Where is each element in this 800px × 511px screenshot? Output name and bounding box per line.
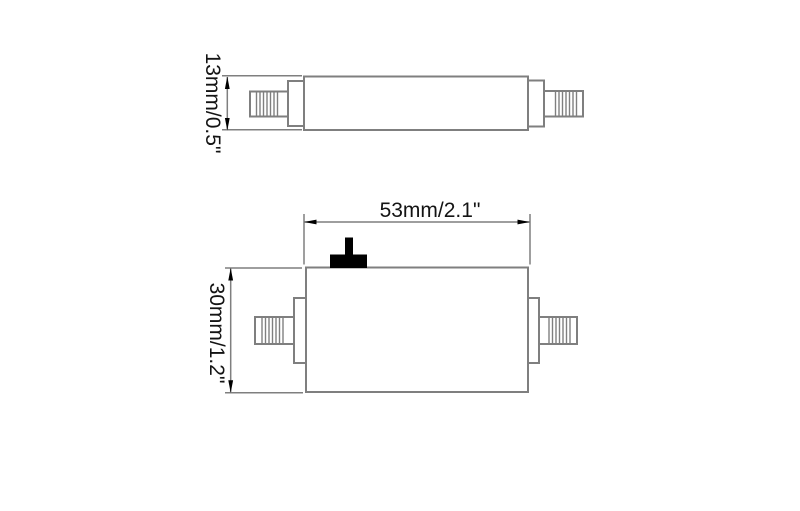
arrowhead-up-icon <box>225 77 230 90</box>
front-view-outlines <box>255 268 577 393</box>
side-view-height-dimension-label: 13mm/0.5" <box>201 53 224 154</box>
arrowhead-right-icon <box>518 220 531 225</box>
arrowhead-down-icon <box>225 118 230 131</box>
side-view-outlines <box>250 77 583 131</box>
side-view: 13mm/0.5" <box>201 53 583 154</box>
front-view-right-connector <box>539 317 577 344</box>
side-view-body <box>304 77 528 131</box>
front-view-right-connector-threads <box>549 317 570 344</box>
front-view-width-dimension-label: 53mm/2.1" <box>380 199 481 222</box>
arrowhead-left-icon <box>304 220 317 225</box>
side-view-left-flange <box>288 81 304 126</box>
front-view-height-label-group: 30mm/1.2" <box>205 283 228 384</box>
front-view-left-connector-threads <box>262 317 283 344</box>
front-view: 53mm/2.1" 30mm/1.2" <box>205 199 577 393</box>
toggle-switch <box>330 238 367 269</box>
front-view-body <box>306 268 528 393</box>
arrowhead-down-icon <box>228 380 233 393</box>
side-view-left-connector-threads <box>257 92 278 117</box>
front-view-right-flange <box>528 298 539 363</box>
side-view-height-label-group: 13mm/0.5" <box>201 53 224 154</box>
toggle-switch-lever <box>345 238 353 255</box>
side-view-right-connector-threads <box>556 91 577 117</box>
toggle-switch-base <box>330 255 367 269</box>
side-view-right-flange <box>528 81 544 127</box>
side-view-left-connector <box>250 92 288 117</box>
arrowhead-up-icon <box>228 268 233 281</box>
front-view-height-dimension-label: 30mm/1.2" <box>205 283 228 384</box>
technical-drawing: 13mm/0.5" <box>0 0 800 511</box>
front-view-width-label-group: 53mm/2.1" <box>380 199 481 222</box>
side-view-height-dimension: 13mm/0.5" <box>201 53 302 154</box>
front-view-left-flange <box>294 298 306 363</box>
front-view-left-connector <box>255 317 294 344</box>
